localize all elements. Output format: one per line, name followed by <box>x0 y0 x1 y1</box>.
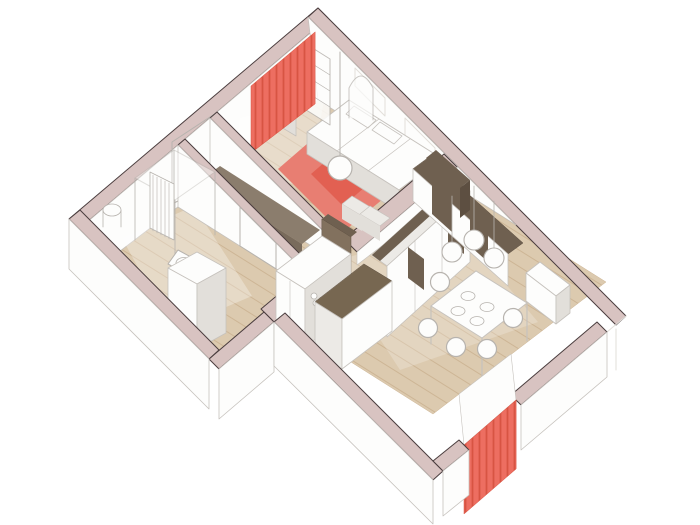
water-heater-top <box>103 204 121 216</box>
floor-mirror <box>349 76 373 120</box>
table-plate-3 <box>451 307 465 316</box>
dining-chair-2 <box>447 338 466 357</box>
table-plate-1 <box>461 292 475 301</box>
apartment-isometric-floor-plan <box>0 0 700 525</box>
dining-chair-3 <box>478 340 497 359</box>
table-plate-4 <box>470 317 484 326</box>
dining-pendant-lamp-1 <box>442 242 462 262</box>
dining-pendant-lamp-2 <box>464 230 484 250</box>
dining-chair-4 <box>504 309 523 328</box>
dining-pendant-lamp-3 <box>484 248 504 268</box>
bathroom-radiator <box>150 172 174 240</box>
cooktop-burner-1 <box>311 293 317 299</box>
dining-chair-5 <box>431 273 450 292</box>
scene-root <box>69 8 626 524</box>
table-plate-2 <box>480 303 494 312</box>
dining-chair-1 <box>419 319 438 338</box>
bedroom-pendant-lamp <box>328 156 352 180</box>
floor-plan-canvas <box>0 0 700 525</box>
